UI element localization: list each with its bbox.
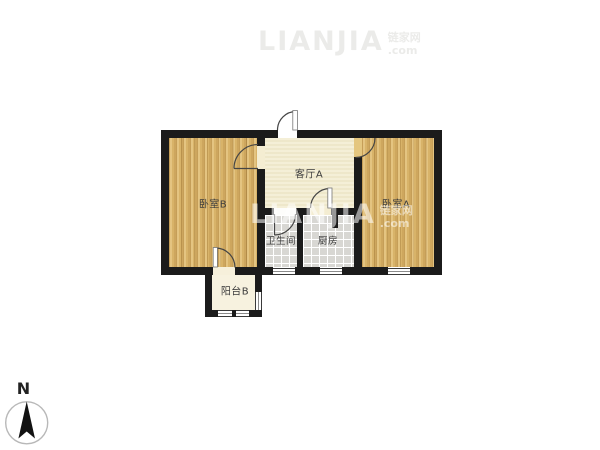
wall-bottom-seg3 (295, 267, 320, 275)
wall-left (161, 130, 169, 275)
balcony-window-mullion (232, 310, 236, 317)
entry-door-arc (278, 112, 297, 131)
kitchen-label: 厨房 (318, 233, 338, 247)
bathroom-window (273, 268, 295, 275)
wall-kitchen-flue-stub (332, 214, 338, 228)
watermark-side-text: 链家网 .com (388, 31, 421, 57)
doorway-bedroom-b (257, 146, 265, 169)
wall-top-right (297, 130, 442, 138)
floor-plan-canvas: LIANJIA 链家网 .com (0, 0, 600, 450)
wall-kitchen-bedrooma (354, 157, 362, 267)
balcony-wall-right (255, 267, 263, 292)
wall-bottom-seg5 (410, 267, 442, 275)
balcony-side-window (255, 292, 262, 310)
compass: N (6, 379, 48, 444)
compass-circle (6, 402, 48, 444)
wall-bedroomb-living-stub (257, 130, 265, 146)
living-room-label: 客厅A (295, 166, 323, 181)
watermark-side-bottom: .com (388, 44, 421, 57)
watermark-top: LIANJIA 链家网 .com (258, 28, 421, 57)
compass-north-label: N (17, 379, 30, 398)
wall-bedroomb-living (257, 169, 265, 275)
kitchen-window (320, 268, 342, 275)
watermark-side-top: 链家网 (388, 31, 421, 44)
balcony-corner-right (249, 310, 262, 317)
watermark-main-text: LIANJIA (258, 28, 384, 55)
doorway-bathroom (274, 208, 296, 215)
bathroom-label: 卫生间 (266, 233, 296, 247)
doorway-entry (278, 130, 297, 138)
bedroom-b-label: 卧室B (199, 196, 227, 211)
doorway-bedroom-a (354, 138, 362, 157)
wall-bottom-seg4 (342, 267, 388, 275)
entry-door-leaf (293, 111, 298, 131)
wall-right (434, 130, 442, 275)
balcony-corner-left (205, 310, 218, 317)
compass-north-arrow-icon (18, 402, 35, 439)
bedroom-a-label: 卧室A (382, 196, 410, 211)
balcony-label: 阳台B (221, 283, 249, 298)
wall-living-bath-seg1 (265, 208, 274, 215)
wall-bath-kitchen (297, 208, 303, 267)
doorway-balcony (213, 267, 235, 275)
doorway-kitchen (310, 208, 331, 215)
bedroom-a-window (388, 268, 410, 275)
